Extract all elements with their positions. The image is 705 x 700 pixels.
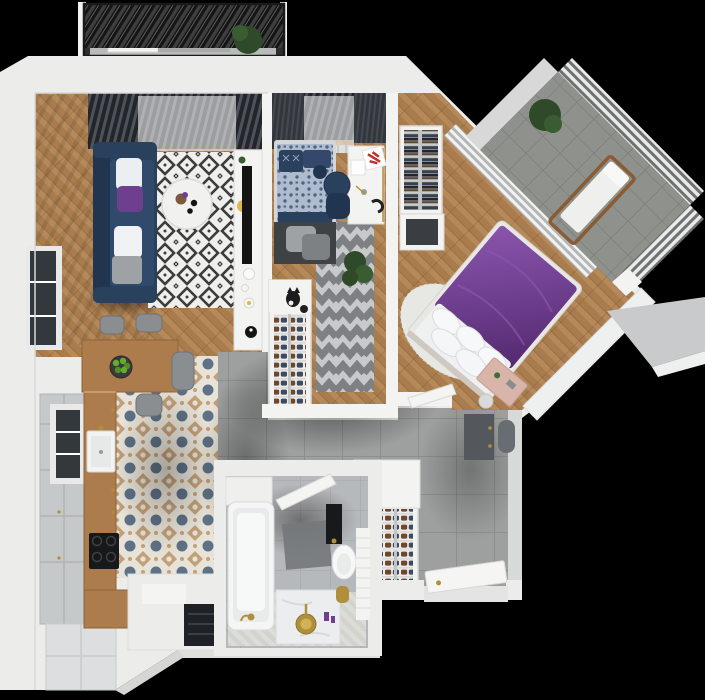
half-wall [356,528,370,620]
entrance-wall [380,580,424,600]
apple [121,367,127,373]
kids-room-bottom-wall [262,404,398,418]
kids-bedroom-wall [386,93,398,408]
shoe-rack-shelf [379,548,413,551]
appliance-block [128,574,222,650]
wardrobe-knob [488,444,492,448]
sofa-throw-blanket [112,256,142,284]
black-ball [300,305,308,313]
dresser-top-dark [406,219,438,245]
cat-bowl [245,326,257,338]
cat-chest [289,301,294,306]
cooktop [89,533,119,569]
kids-dark-curtain [354,93,386,143]
bathroom [214,460,382,656]
desk-card [351,160,365,175]
sink [87,425,115,472]
cabinet-knob [57,556,60,559]
bath-shelf [226,477,272,505]
plant-foliage [342,270,358,286]
candle [191,200,197,206]
cabinet-knob [57,510,60,513]
decor-egg [247,301,251,305]
cat-bowl-content [249,328,252,331]
bar-stool [136,314,162,332]
sink-drain [99,450,103,454]
open-wardrobe [400,126,442,214]
tv-bench-plant [239,157,246,164]
navy-sofa [93,142,157,303]
floor-plan-render [0,0,705,700]
living-side-window [30,251,56,345]
decor-cup [242,285,249,292]
cistern-panel [326,504,342,544]
appliance-top [142,584,186,604]
drawer-knob [111,488,114,491]
bed-cushion-round [313,165,327,179]
tub-basin [237,513,265,611]
drawer-knob [111,510,114,513]
bathtub [228,502,274,630]
wardrobe-knob [488,426,492,430]
plant-foliage [355,265,373,283]
tv [242,166,252,264]
toilet-seat [337,553,351,575]
apple [115,367,121,373]
balcony-plant-leaves [544,115,562,133]
bed-pillow-navy [303,150,331,168]
bath-vanity [276,590,340,644]
gold-basin-inner [301,619,312,630]
wardrobe-pole [419,130,422,210]
entrance-wall [506,580,522,600]
sofa-backrest [93,142,110,303]
gold-bin [336,586,349,603]
tiled-half-wall [356,528,370,620]
sofa-pillow-white [116,158,142,190]
flush-button [332,539,337,544]
cat-body [286,291,300,307]
dried-flowers-purple [182,192,188,198]
bar-stool [172,352,194,390]
shelf-pole [288,314,291,406]
desk-chair-seat [326,193,350,219]
sofa-pillow-white [114,226,142,258]
kids-room [262,93,398,418]
footer-pillow [302,234,330,260]
bath-mat [282,520,332,570]
cosmetic-bottle [324,612,329,621]
pouf [498,420,515,453]
kids-shoe-shelf [269,280,311,410]
cosmetic-bottle [331,616,335,623]
kitchen-window [56,410,80,478]
dark-wardrobe-body [464,414,494,460]
bar-stool [136,394,162,416]
candle [187,208,193,214]
apple [113,360,119,366]
floor-plan-stage [0,0,705,700]
diamond-rug [148,152,236,308]
drawer-knob [111,408,114,411]
balcony-plant-leaves [232,25,248,41]
top-balcony [78,2,287,57]
bed-pillow-navy [279,150,303,172]
coffee-table-top [162,179,212,229]
decor-plate [244,269,255,280]
fruit-bowl [110,356,132,378]
sofa-armrest [93,142,157,158]
dresser [400,214,444,250]
dark-wardrobe [464,414,494,460]
sofa-pillow-purple [117,186,143,212]
bar-stool [100,316,124,334]
sink-faucet [98,425,103,430]
sofa-armrest [93,287,157,303]
apple [120,358,126,364]
